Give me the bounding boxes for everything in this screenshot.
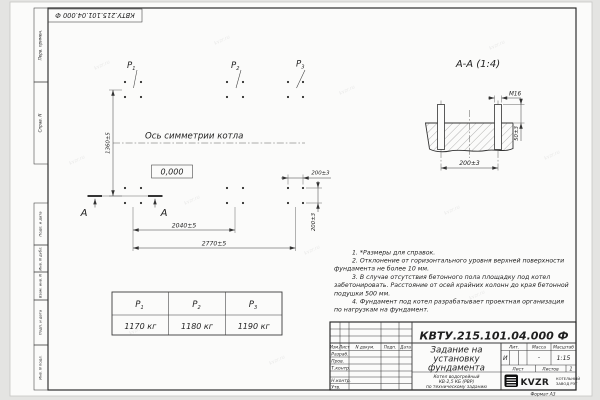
lit-value: И	[503, 355, 508, 362]
thread-label: М16	[509, 92, 522, 98]
table-header-p2-sub: 2	[197, 305, 200, 311]
doc-title-line3: фундамента	[428, 364, 485, 374]
table-value-p1: 1170 кг	[124, 322, 157, 331]
logo-text: KVZR	[521, 378, 550, 388]
dim-2040-label: 2040±5	[172, 222, 197, 229]
margin-label-perv-primen: Перв. примен.	[38, 30, 43, 61]
table-header-p1-sub: 1	[140, 305, 143, 311]
row-utv: Утв.	[331, 384, 340, 390]
notes-block: 1. *Размеры для справок. 2. Отклонение о…	[334, 249, 569, 313]
elevation-value: 0,000	[161, 168, 184, 177]
note-line: забетонировать. Расстояние от осей крайн…	[334, 281, 569, 289]
row-razrab: Разраб.	[331, 351, 348, 357]
section-letter-left: А	[80, 208, 88, 219]
p3-subscript: 3	[301, 64, 304, 70]
listov-label: Листов	[541, 366, 559, 372]
margin-label-sprav-n: Справ. N	[38, 114, 43, 133]
symmetry-axis-label: Ось симметрии котла	[145, 132, 243, 142]
dim-2770-label: 2770±5	[202, 240, 227, 247]
table-header-p3-sub: 3	[254, 305, 257, 311]
margin-label-podp-data-2: Подп. и дата	[39, 309, 43, 335]
note-line: 3. В случае отсутствия бетонного пола пл…	[352, 273, 550, 281]
col-list: Лист	[338, 344, 350, 349]
boiler-desc-line1: Котел водогрейный	[433, 374, 479, 380]
p1-subscript: 1	[132, 66, 135, 72]
dim-bolt-x-label: 200±3	[311, 171, 330, 177]
col-ndoc: N докум.	[356, 344, 375, 349]
margin-label-vzam-inv: Взам. инв. N	[39, 274, 43, 298]
margin-label-inv-dubl: Инв. N дубл.	[39, 246, 43, 270]
format-label: Формат А3	[530, 392, 555, 398]
mass-value: -	[538, 355, 540, 362]
col-podp: Подп.	[384, 344, 396, 349]
note-line: подушки 500 мм.	[334, 290, 390, 297]
anchor-stud-left	[438, 105, 445, 150]
dim-protrusion-label: 50±3	[514, 126, 520, 141]
note-line: 1. *Размеры для справок.	[352, 249, 435, 256]
section-title: А-А (1:4)	[455, 59, 500, 70]
section-letter-right: А	[160, 208, 168, 219]
row-prov: Пров.	[331, 358, 344, 364]
listov-value: 1	[569, 366, 572, 372]
row-nkontr: Н.контр.	[331, 378, 351, 384]
row-tkontr: Т.контр.	[331, 365, 350, 371]
table-value-p3: 1190 кг	[238, 322, 271, 331]
col-data: Дата	[399, 344, 411, 349]
list-label: Лист	[511, 366, 524, 372]
note-line: фундамента не более 10 мм.	[334, 265, 429, 273]
margin-label-inv-podl: Инв. N подл.	[39, 355, 43, 379]
note-line: по нагрузкам на фундамент.	[334, 307, 429, 314]
scale-header: Масштаб	[553, 345, 574, 351]
logo-subtext-line2: ЗАВОД РЭТ	[556, 382, 578, 386]
logo-subtext-line1: КОТЕЛЬНЫЙ	[556, 376, 580, 381]
dim-1360-label: 1360±5	[106, 132, 112, 154]
table-value-p2: 1180 кг	[181, 322, 214, 331]
col-izm: Изм.	[330, 344, 340, 349]
mass-header: Масса	[532, 345, 546, 351]
scale-value: 1:15	[557, 355, 571, 362]
boiler-desc-line2: КВ-2,5 КБ (РВР)	[439, 379, 475, 385]
dim-bolt-y-label: 200±3	[311, 212, 317, 231]
boiler-desc-line3: по техническому заданию	[426, 385, 487, 390]
dim-spacing-label: 200±3	[459, 160, 480, 167]
p2-subscript: 2	[236, 66, 239, 72]
drawing-sheet-screenshot: kvzr.ru kvzr.ru kvzr.ru kvzr.ru kvzr.ru …	[0, 0, 600, 400]
anchor-stud-right	[495, 105, 502, 150]
note-line: 4. Фундамент под котел разрабатывает про…	[352, 298, 564, 306]
top-stamp-doc-number: КВТУ.215.101.04.000 Ф	[55, 11, 135, 19]
lit-header: Лит.	[508, 345, 519, 351]
title-block-doc-number: КВТУ.215.101.04.000 Ф	[419, 330, 568, 343]
note-line: 2. Отклонение от горизонтального уровня …	[352, 258, 564, 265]
margin-label-podp-data-1: Подп. и дата	[39, 211, 43, 237]
